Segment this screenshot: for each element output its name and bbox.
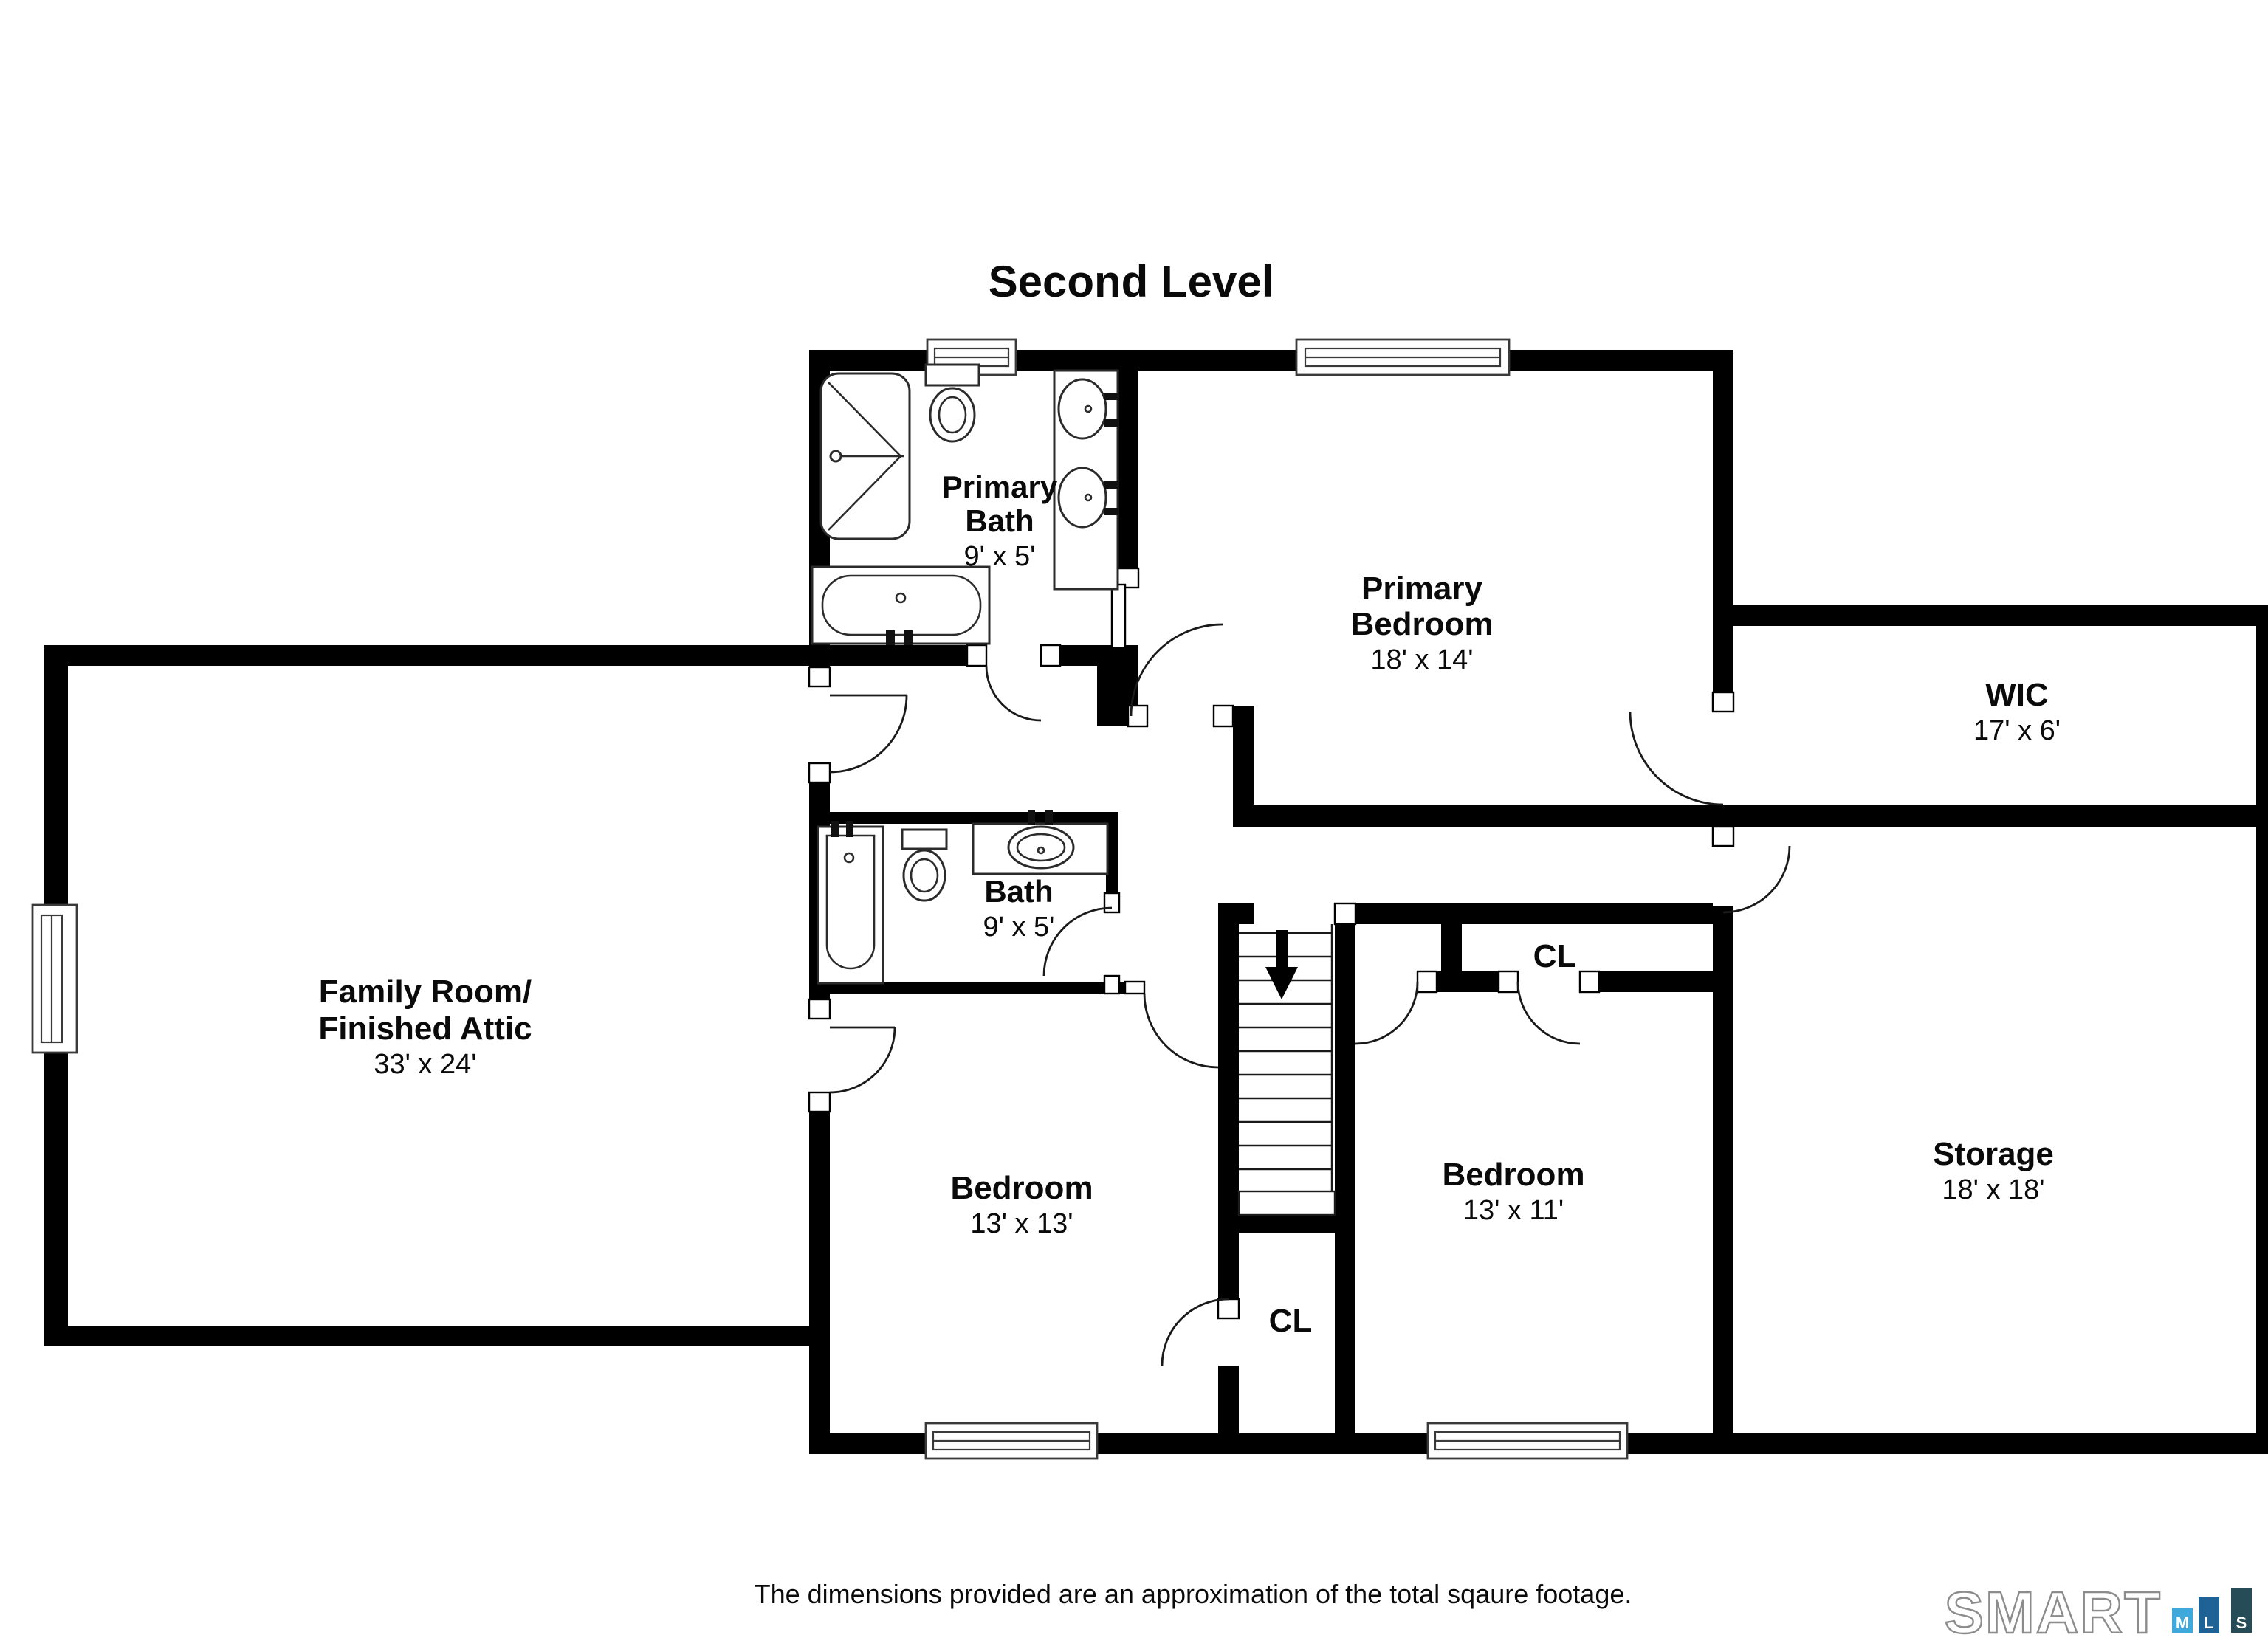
- room-label-closet-lower: CL: [1269, 1303, 1313, 1339]
- shower: [821, 373, 910, 539]
- room-dims-bedroom-1: 13' x 13': [970, 1208, 1073, 1239]
- room-label-closet-upper: CL: [1533, 938, 1577, 974]
- tub: [818, 821, 883, 983]
- window-symbol: [926, 1423, 1097, 1459]
- room-label-primary-bath: Primary: [942, 469, 1058, 504]
- room-label-bedroom-1: Bedroom: [950, 1170, 1093, 1206]
- page-title: Second Level: [989, 257, 1274, 306]
- stairs-down-arrow-icon: [1265, 930, 1298, 999]
- toilet: [926, 365, 979, 441]
- room-label-family-room: Finished Attic: [318, 1011, 532, 1047]
- window-symbol: [32, 905, 77, 1053]
- room-dims-bedroom-2: 13' x 11': [1463, 1195, 1564, 1226]
- room-label-wic: WIC: [1985, 677, 2049, 713]
- smartmls-logo: SMART MLS: [1945, 1580, 2252, 1645]
- logo-bar-letter: S: [2236, 1614, 2247, 1632]
- floor-plan-page: Second Level: [0, 0, 2268, 1649]
- window-symbol: [1428, 1423, 1627, 1459]
- logo-wordmark: SMART: [1945, 1580, 2162, 1645]
- logo-bars: MLS: [2172, 1588, 2252, 1633]
- room-label-family-room: Family Room/: [319, 974, 532, 1010]
- double-vanity: [1054, 371, 1118, 589]
- staircase: [1239, 924, 1335, 1215]
- room-dims-storage: 18' x 18': [1942, 1174, 2044, 1205]
- room-dims-family-room: 33' x 24': [374, 1049, 476, 1080]
- toilet-2: [902, 830, 946, 901]
- exterior-walls: [44, 350, 2268, 1454]
- room-labels: PrimaryBath9' x 5'PrimaryBedroom18' x 14…: [318, 469, 2061, 1339]
- floor-plan-canvas: Second Level: [0, 0, 2268, 1649]
- room-label-primary-bath: Bath: [965, 503, 1034, 538]
- room-dims-wic: 17' x 6': [1973, 715, 2061, 746]
- room-label-bedroom-2: Bedroom: [1442, 1157, 1584, 1193]
- room-label-storage: Storage: [1933, 1136, 2054, 1172]
- stair-landing: [1239, 1191, 1335, 1215]
- room-dims-primary-bedroom: 18' x 14': [1370, 644, 1473, 675]
- bathtub: [812, 567, 989, 645]
- room-dims-primary-bath: 9' x 5': [964, 541, 1036, 572]
- room-label-bath: Bath: [984, 874, 1053, 909]
- hall-bath-fixtures: [818, 810, 1107, 983]
- window-symbol: [1296, 340, 1509, 375]
- logo-bar-letter: L: [2204, 1614, 2213, 1632]
- footer-disclaimer: The dimensions provided are an approxima…: [755, 1579, 1632, 1609]
- room-dims-bath: 9' x 5': [983, 912, 1055, 943]
- logo-bar-letter: M: [2176, 1614, 2189, 1632]
- room-label-primary-bedroom: Bedroom: [1350, 606, 1493, 642]
- room-label-primary-bedroom: Primary: [1361, 571, 1482, 607]
- door-leaf: [1112, 585, 1125, 648]
